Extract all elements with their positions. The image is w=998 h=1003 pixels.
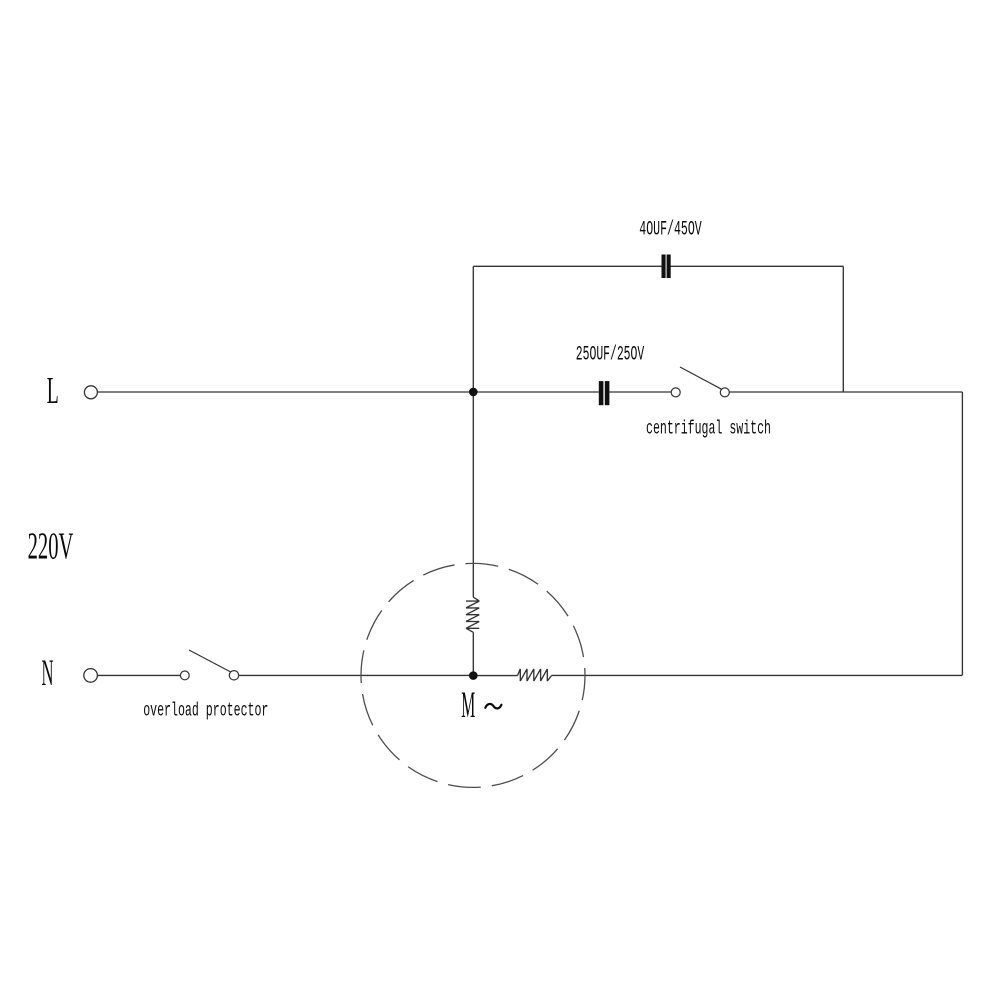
svg-text:25OUF/25OV: 25OUF/25OV [576, 344, 644, 367]
svg-text:overload protector: overload protector [143, 700, 268, 722]
svg-text:L: L [47, 370, 59, 412]
svg-text:220V: 220V [28, 526, 74, 568]
svg-text:4OUF/45OV: 4OUF/45OV [639, 219, 702, 242]
svg-text:centrifugal switch: centrifugal switch [646, 418, 771, 440]
svg-text:N: N [42, 652, 54, 693]
svg-text:M: M [461, 685, 475, 726]
